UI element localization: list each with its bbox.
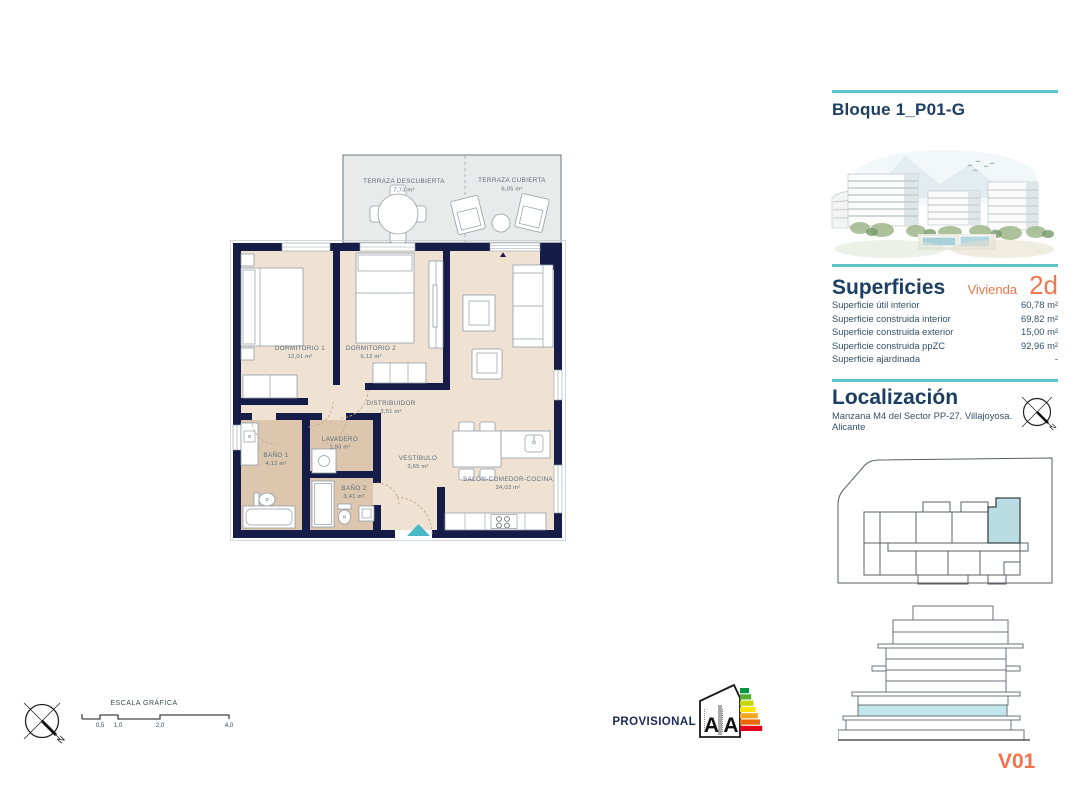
- floor-plan: TERRAZA DESCUBIERTA 7,73 m² TERRAZA CUBI…: [210, 135, 570, 555]
- scale-tick: 4,0: [225, 722, 234, 729]
- room-area: 12,01 m²: [288, 354, 313, 360]
- table-row: Superficie construida exterior 15,00 m²: [832, 325, 1058, 339]
- localizacion-title: Localización: [832, 386, 958, 410]
- row-value: 60,78 m²: [1021, 298, 1058, 312]
- room-label: DORMITORIO 2: [346, 345, 396, 352]
- room-label: VESTÍBULO: [399, 453, 438, 462]
- graphic-scale: ESCALA GRÁFICA 0,5 1,0 2,0 4,0: [58, 694, 243, 736]
- site-key-plan: [828, 450, 1062, 590]
- vivienda-code: 2d: [1029, 270, 1058, 301]
- energy-letter-consumo: A: [704, 714, 719, 737]
- energy-rating-icon: A A: [697, 681, 763, 741]
- apartment: DORMITORIO 1 12,01 m² DORMITORIO 2 9,12 …: [231, 241, 566, 541]
- energy-scale-bars: [740, 688, 762, 731]
- row-label: Superficie útil interior: [832, 298, 920, 312]
- row-value: -: [1055, 352, 1058, 366]
- superficies-title: Superficies: [832, 276, 945, 300]
- row-value: 15,00 m²: [1021, 325, 1058, 339]
- block-title: Bloque 1_P01-G: [832, 100, 965, 120]
- energy-letter-emisiones: A: [723, 714, 738, 737]
- room-area: 24,03 m²: [496, 485, 521, 491]
- vivienda-label: Vivienda: [967, 282, 1017, 297]
- room-area: 9,12 m²: [360, 354, 381, 360]
- north-label: N: [1048, 422, 1059, 432]
- room-label: DORMITORIO 1: [275, 345, 325, 352]
- table-row: Superficie construida interior 69,82 m²: [832, 312, 1058, 326]
- room-area: 3,65 m²: [407, 464, 428, 470]
- row-value: 92,96 m²: [1021, 339, 1058, 353]
- table-row: Superficie ajardinada -: [832, 352, 1058, 366]
- room-label: TERRAZA DESCUBIERTA: [363, 178, 445, 185]
- superficies-header: Superficies Vivienda 2d: [832, 270, 1058, 301]
- plan-sheet: TERRAZA DESCUBIERTA 7,73 m² TERRAZA CUBI…: [0, 0, 1087, 800]
- room-area: 7,73 m²: [393, 188, 414, 194]
- table-row: Superficie útil interior 60,78 m²: [832, 298, 1058, 312]
- room-area: 4,12 m²: [265, 461, 286, 467]
- provisional-label: PROVISIONAL: [612, 716, 696, 728]
- divider-localizacion: [832, 379, 1058, 382]
- scale-bar: [82, 715, 229, 719]
- scale-tick: 2,0: [156, 722, 165, 729]
- row-label: Superficie construida interior: [832, 312, 951, 326]
- highlighted-unit: [988, 498, 1020, 543]
- terrace: TERRAZA DESCUBIERTA 7,73 m² TERRAZA CUBI…: [343, 155, 561, 243]
- building-elevation: [838, 598, 1043, 748]
- room-label: TERRAZA CUBIERTA: [478, 177, 546, 184]
- scale-tick: 1,0: [114, 722, 123, 729]
- building-rendering-image: [830, 136, 1060, 262]
- scale-tick: 0,5: [96, 722, 105, 729]
- divider-top: [832, 90, 1058, 93]
- row-value: 69,82 m²: [1021, 312, 1058, 326]
- row-label: Superficie ajardinada: [832, 352, 920, 366]
- scale-title: ESCALA GRÁFICA: [110, 698, 177, 707]
- divider-superficies: [832, 264, 1058, 267]
- table-row: Superficie construida ppZC 92,96 m²: [832, 339, 1058, 353]
- compass-icon: N: [1016, 392, 1062, 438]
- room-area: 3,41 m²: [343, 494, 364, 500]
- version-code: V01: [998, 750, 1035, 774]
- room-label: BAÑO 1: [263, 450, 288, 459]
- row-label: Superficie construida ppZC: [832, 339, 945, 353]
- laundry-fixtures: [312, 449, 336, 473]
- room-area: 2,51 m²: [380, 409, 401, 415]
- room-area: 1,93 m²: [329, 445, 350, 451]
- room-label: DISTRIBUIDOR: [366, 400, 415, 407]
- room-area: 6,05 m²: [501, 187, 522, 193]
- room-label: SALÓN-COMEDOR-COCINA: [463, 474, 553, 483]
- highlighted-floor: [858, 705, 1007, 716]
- room-label: LAVADERO: [322, 436, 358, 443]
- row-label: Superficie construida exterior: [832, 325, 953, 339]
- room-label: BAÑO 2: [341, 483, 366, 492]
- superficies-table: Superficie útil interior 60,78 m² Superf…: [832, 298, 1058, 366]
- bedroom1-furniture: [241, 254, 303, 398]
- localizacion-address: Manzana M4 del Sector PP-27. Villajoyosa…: [832, 410, 1017, 432]
